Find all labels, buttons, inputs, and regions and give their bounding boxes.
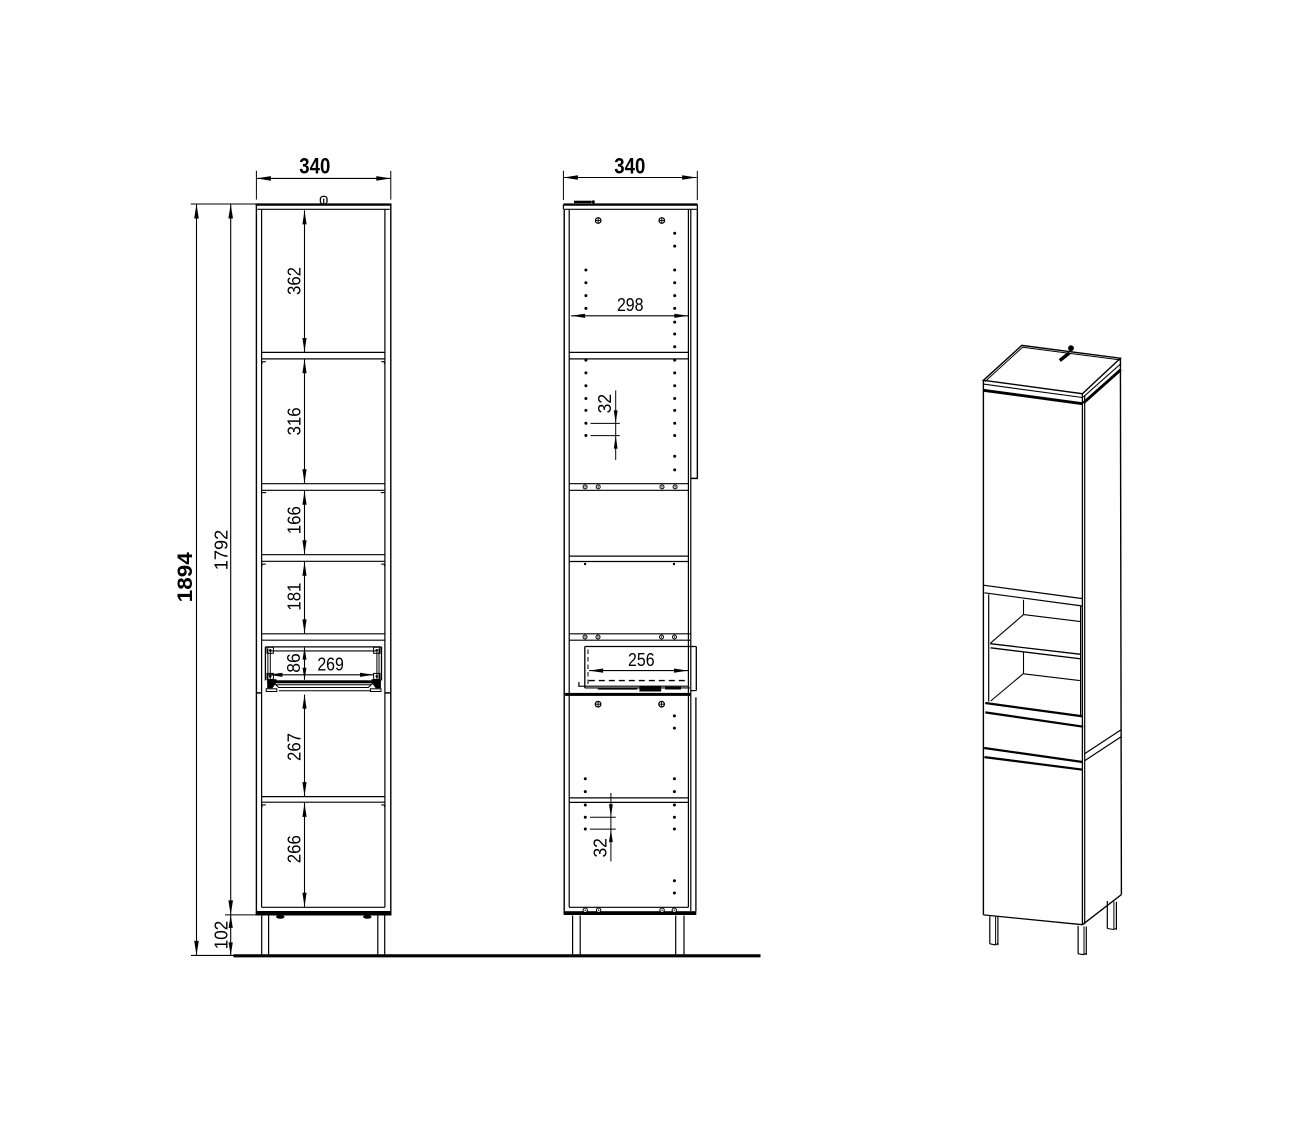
svg-text:32: 32 [595,394,615,414]
svg-text:362: 362 [284,267,304,295]
svg-text:267: 267 [284,733,304,761]
svg-text:316: 316 [284,407,304,435]
svg-text:298: 298 [617,295,644,315]
svg-text:1894: 1894 [173,552,197,602]
svg-text:340: 340 [614,154,645,179]
svg-text:102: 102 [210,921,231,950]
svg-text:1792: 1792 [211,530,232,571]
svg-text:269: 269 [317,655,344,675]
svg-text:266: 266 [284,835,304,863]
svg-text:181: 181 [284,583,304,611]
svg-text:256: 256 [628,650,655,670]
svg-text:86: 86 [284,653,304,673]
svg-text:340: 340 [299,154,330,179]
svg-text:32: 32 [590,838,610,858]
svg-text:166: 166 [284,506,304,534]
